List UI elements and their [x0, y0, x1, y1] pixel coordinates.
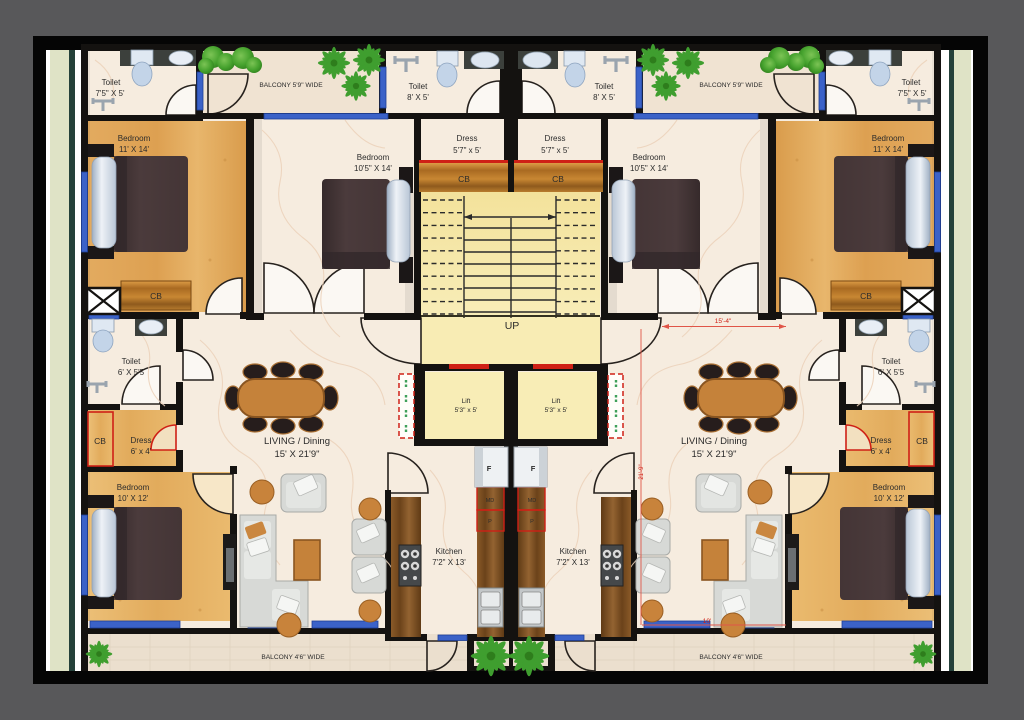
svg-text:MD: MD	[528, 498, 537, 504]
svg-text:7'2" X 13': 7'2" X 13'	[432, 558, 466, 567]
svg-text:21'-9": 21'-9"	[639, 464, 645, 479]
svg-text:Bedroom: Bedroom	[118, 134, 151, 143]
svg-text:UP: UP	[505, 320, 520, 332]
svg-text:MD: MD	[486, 498, 495, 504]
svg-text:7'5" X 5': 7'5" X 5'	[897, 89, 926, 98]
svg-text:P: P	[530, 519, 534, 525]
svg-text:F: F	[487, 464, 492, 473]
svg-text:11' X 14': 11' X 14'	[119, 145, 150, 154]
svg-text:7'2" X 13': 7'2" X 13'	[556, 558, 590, 567]
svg-text:Dress: Dress	[457, 134, 478, 143]
svg-text:CB: CB	[860, 291, 872, 301]
svg-text:Lift: Lift	[552, 398, 561, 405]
svg-text:10'5" X 14': 10'5" X 14'	[630, 164, 668, 173]
svg-text:CB: CB	[150, 291, 162, 301]
svg-text:BALCONY 5'9" WIDE: BALCONY 5'9" WIDE	[699, 82, 763, 89]
svg-text:Toilet: Toilet	[595, 82, 614, 91]
svg-text:5'3" x 5': 5'3" x 5'	[455, 407, 478, 414]
svg-text:5'7" x 5': 5'7" x 5'	[453, 146, 481, 155]
svg-text:Toilet: Toilet	[409, 82, 428, 91]
svg-text:10'5" X 14': 10'5" X 14'	[354, 164, 392, 173]
svg-text:Dress: Dress	[131, 436, 152, 445]
svg-text:6' X 5'5: 6' X 5'5	[878, 368, 905, 377]
svg-text:Dress: Dress	[871, 436, 892, 445]
svg-text:LIVING / Dining: LIVING / Dining	[681, 436, 747, 447]
svg-text:6' X 5'5: 6' X 5'5	[118, 368, 145, 377]
svg-text:10': 10'	[703, 618, 711, 625]
svg-text:15'-4": 15'-4"	[715, 318, 732, 325]
svg-text:CB: CB	[552, 174, 564, 184]
svg-text:CB: CB	[916, 436, 928, 446]
svg-text:10' X 12': 10' X 12'	[874, 494, 905, 503]
svg-text:CB: CB	[458, 174, 470, 184]
svg-text:Bedroom: Bedroom	[873, 483, 906, 492]
svg-text:Toilet: Toilet	[902, 78, 921, 87]
svg-text:Bedroom: Bedroom	[357, 153, 390, 162]
svg-text:Lift: Lift	[462, 398, 471, 405]
svg-text:Bedroom: Bedroom	[872, 134, 905, 143]
svg-text:5'3" x 5': 5'3" x 5'	[545, 407, 568, 414]
svg-text:Toilet: Toilet	[102, 78, 121, 87]
svg-text:P: P	[488, 519, 492, 525]
svg-text:11' X 14': 11' X 14'	[873, 145, 904, 154]
svg-text:Kitchen: Kitchen	[436, 547, 463, 556]
svg-text:BALCONY 4'6" WIDE: BALCONY 4'6" WIDE	[261, 654, 325, 661]
svg-text:15' X 21'9": 15' X 21'9"	[274, 449, 319, 460]
svg-text:F: F	[531, 464, 536, 473]
svg-text:LIVING / Dining: LIVING / Dining	[264, 436, 330, 447]
svg-text:6' x 4': 6' x 4'	[871, 447, 892, 456]
svg-text:Bedroom: Bedroom	[117, 483, 150, 492]
svg-text:8' X 5': 8' X 5'	[407, 93, 429, 102]
svg-text:10' X 12': 10' X 12'	[118, 494, 149, 503]
svg-text:Toilet: Toilet	[122, 357, 141, 366]
svg-text:7'5" X 5': 7'5" X 5'	[95, 89, 124, 98]
svg-text:5'7" x 5': 5'7" x 5'	[541, 146, 569, 155]
svg-text:CB: CB	[94, 436, 106, 446]
svg-text:Bedroom: Bedroom	[633, 153, 666, 162]
svg-text:BALCONY 5'9" WIDE: BALCONY 5'9" WIDE	[259, 82, 323, 89]
svg-text:15' X 21'9": 15' X 21'9"	[691, 449, 736, 460]
svg-text:Kitchen: Kitchen	[560, 547, 587, 556]
svg-text:6' x 4': 6' x 4'	[131, 447, 152, 456]
svg-text:8' X 5': 8' X 5'	[593, 93, 615, 102]
svg-text:Toilet: Toilet	[882, 357, 901, 366]
svg-text:BALCONY 4'6" WIDE: BALCONY 4'6" WIDE	[699, 654, 763, 661]
svg-text:Dress: Dress	[545, 134, 566, 143]
